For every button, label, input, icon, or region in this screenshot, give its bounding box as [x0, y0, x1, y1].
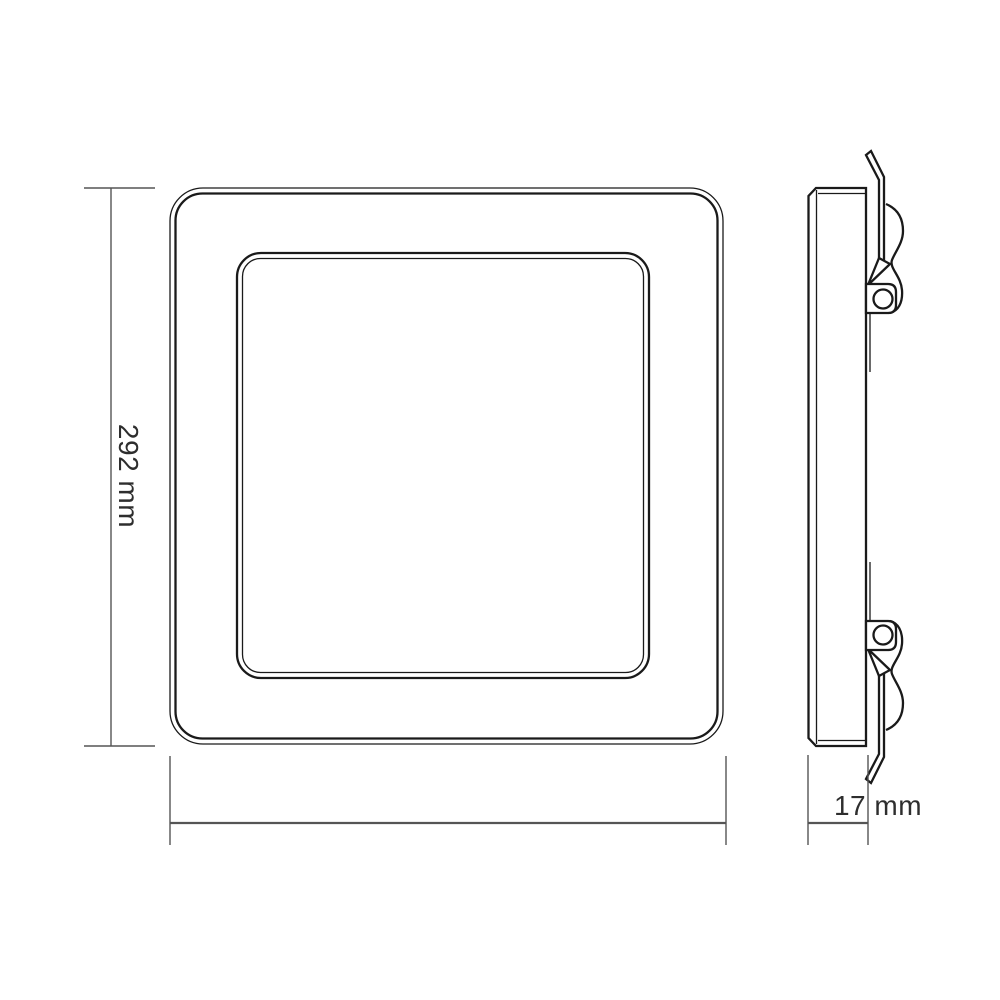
depth-dimension-label: 17 mm	[834, 790, 922, 821]
clip-spring-arm	[866, 151, 884, 261]
panel-diffuser-inner-line	[243, 259, 644, 673]
panel-outer-frame-inner-line	[176, 194, 718, 739]
panel-diffuser-outline	[237, 253, 649, 678]
drawing-canvas: 292 mm 17 mm	[0, 0, 1000, 1000]
clip-rivet	[874, 290, 893, 309]
clip-spring-hook	[868, 258, 890, 285]
technical-drawing: 292 mm 17 mm	[0, 0, 1000, 1000]
spring-clip-bottom	[866, 562, 903, 783]
panel-outer-frame-outline	[170, 188, 723, 744]
side-view	[809, 151, 904, 783]
width-dimension	[170, 756, 726, 845]
depth-dimension: 17 mm	[808, 755, 922, 845]
front-view	[170, 188, 723, 744]
height-dimension: 292 mm	[84, 188, 155, 746]
height-dimension-label: 292 mm	[113, 424, 144, 528]
spring-clip-top	[866, 151, 903, 372]
